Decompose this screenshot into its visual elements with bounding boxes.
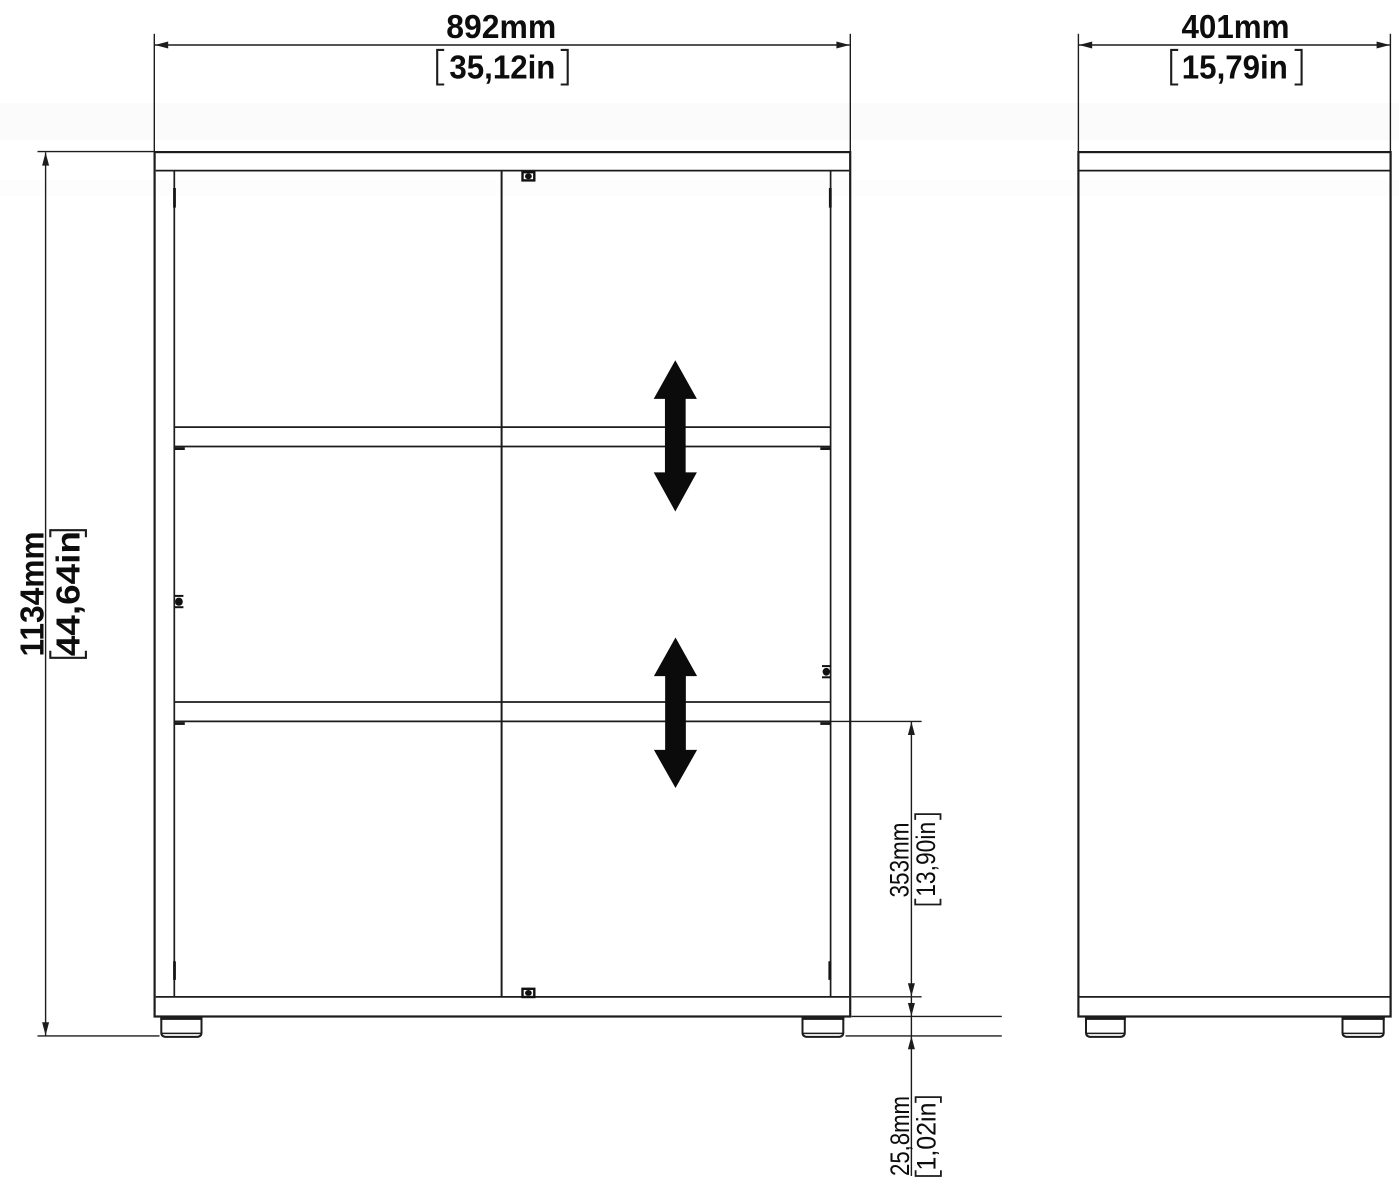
svg-text:15,79in: 15,79in xyxy=(1182,50,1288,87)
svg-text:1,02in: 1,02in xyxy=(911,1103,941,1171)
svg-text:13,90in: 13,90in xyxy=(911,822,941,897)
svg-text:892mm: 892mm xyxy=(446,9,556,46)
svg-text:353mm: 353mm xyxy=(884,823,914,898)
svg-text:401mm: 401mm xyxy=(1182,9,1290,46)
svg-text:35,12in: 35,12in xyxy=(449,50,555,87)
svg-text:44,64in: 44,64in xyxy=(50,531,87,656)
svg-text:1134mm: 1134mm xyxy=(14,532,51,657)
